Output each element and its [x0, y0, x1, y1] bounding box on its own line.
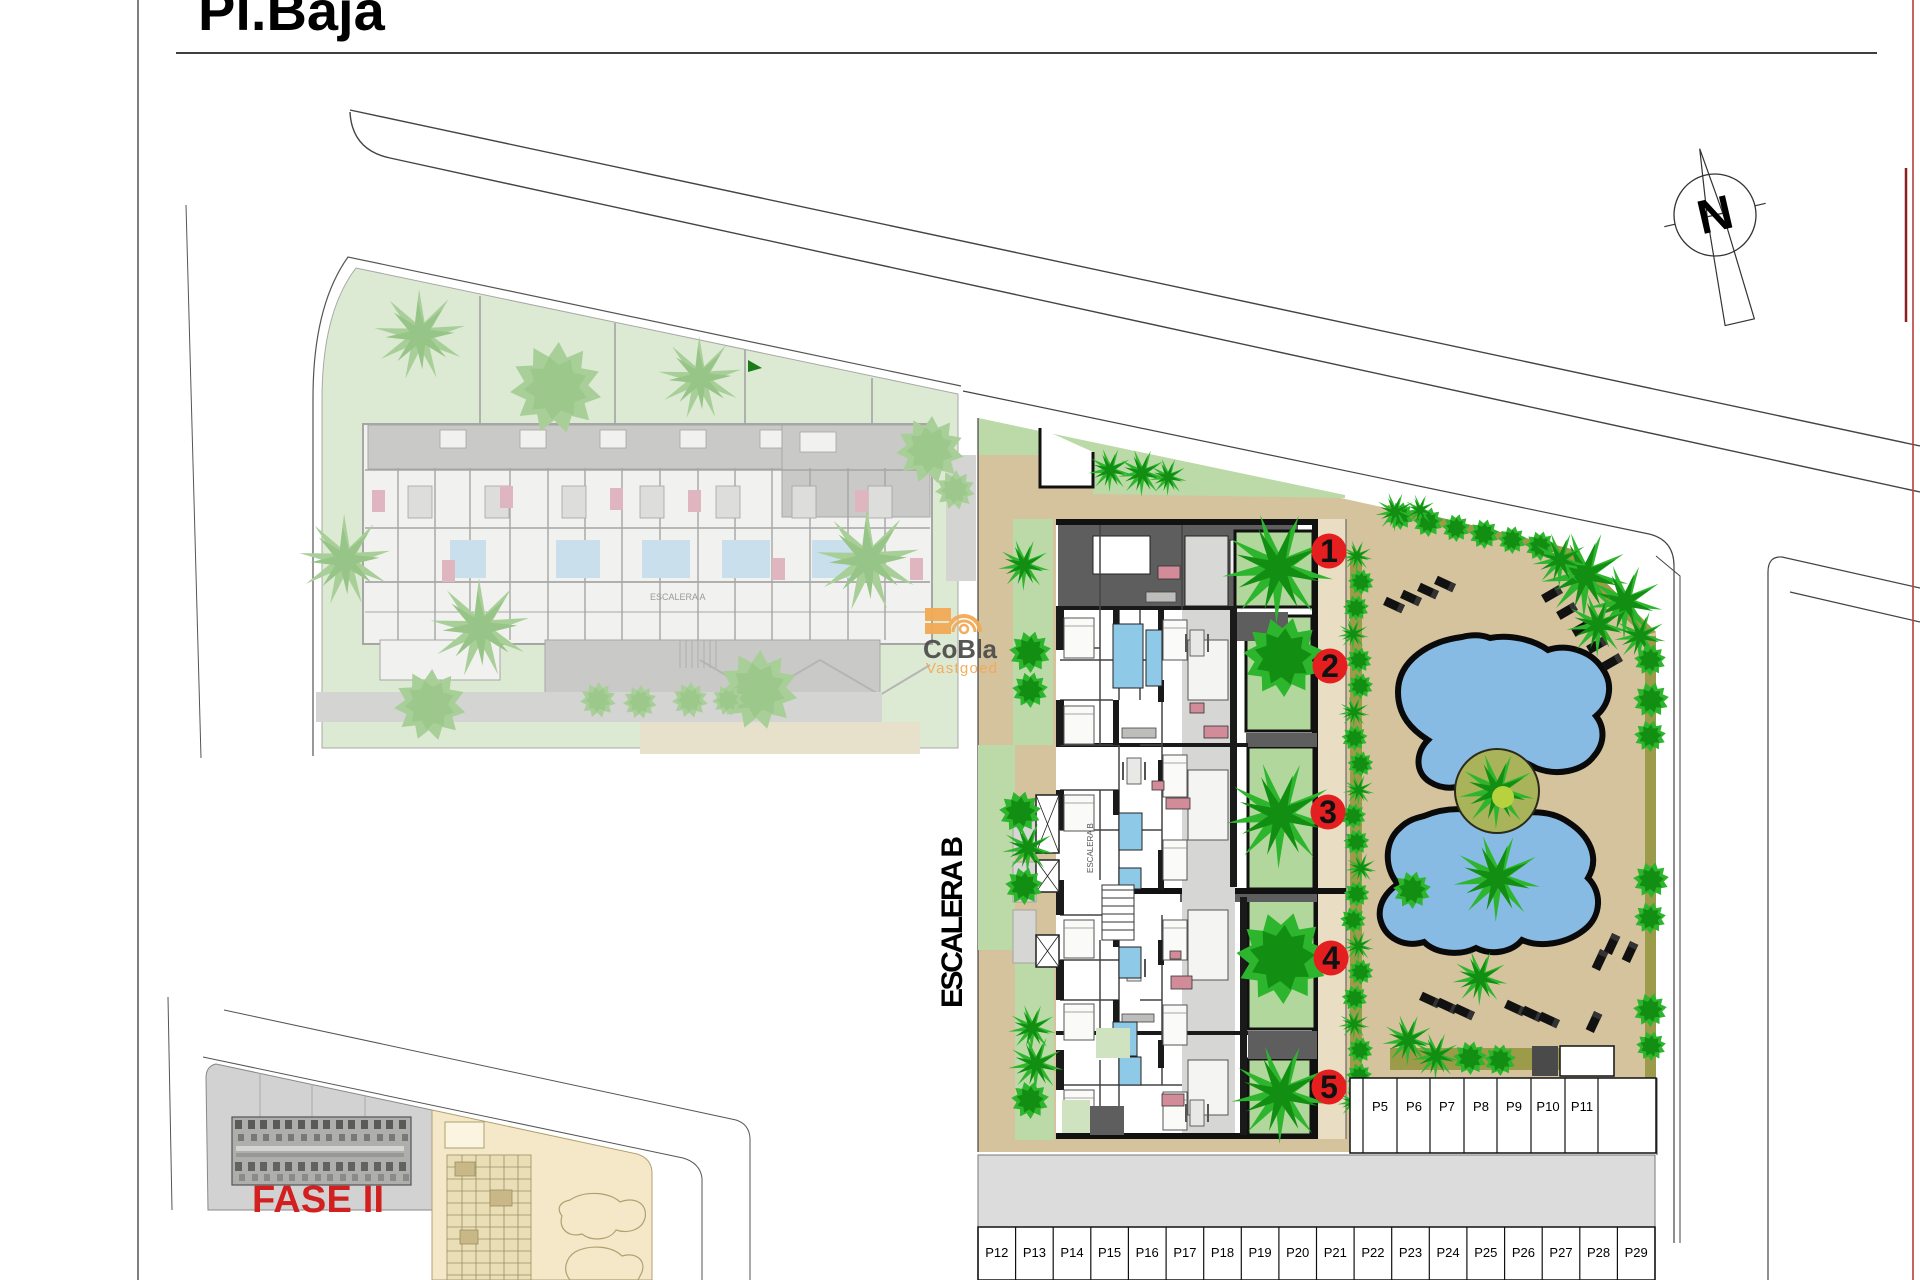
svg-text:Pl.Baja: Pl.Baja — [198, 0, 386, 42]
svg-text:P22: P22 — [1361, 1245, 1384, 1260]
svg-text:P26: P26 — [1512, 1245, 1535, 1260]
svg-text:P20: P20 — [1286, 1245, 1309, 1260]
svg-text:P12: P12 — [985, 1245, 1008, 1260]
svg-text:P29: P29 — [1625, 1245, 1648, 1260]
svg-text:P27: P27 — [1549, 1245, 1572, 1260]
svg-text:5: 5 — [1320, 1069, 1338, 1105]
svg-text:FASE II: FASE II — [252, 1179, 384, 1221]
svg-text:2: 2 — [1321, 648, 1339, 684]
svg-text:P14: P14 — [1060, 1245, 1083, 1260]
svg-text:1: 1 — [1320, 533, 1338, 569]
svg-text:ESCALERA A: ESCALERA A — [650, 592, 706, 602]
svg-text:P9: P9 — [1506, 1099, 1522, 1114]
svg-text:3: 3 — [1319, 794, 1337, 830]
svg-text:P11: P11 — [1571, 1099, 1593, 1114]
svg-text:P23: P23 — [1399, 1245, 1422, 1260]
svg-text:P21: P21 — [1324, 1245, 1347, 1260]
svg-text:P10: P10 — [1536, 1099, 1559, 1114]
svg-text:P5: P5 — [1372, 1099, 1388, 1114]
svg-text:ESCALERA B: ESCALERA B — [936, 836, 969, 1008]
svg-text:P28: P28 — [1587, 1245, 1610, 1260]
svg-text:P8: P8 — [1473, 1099, 1489, 1114]
svg-text:P6: P6 — [1406, 1099, 1422, 1114]
svg-text:P13: P13 — [1023, 1245, 1046, 1260]
svg-text:P17: P17 — [1173, 1245, 1196, 1260]
svg-text:P25: P25 — [1474, 1245, 1497, 1260]
svg-text:ESCALERA B: ESCALERA B — [1086, 823, 1095, 873]
svg-text:P7: P7 — [1439, 1099, 1455, 1114]
svg-text:P19: P19 — [1249, 1245, 1272, 1260]
svg-text:4: 4 — [1322, 940, 1340, 976]
svg-text:P15: P15 — [1098, 1245, 1121, 1260]
svg-text:P18: P18 — [1211, 1245, 1234, 1260]
svg-text:P16: P16 — [1136, 1245, 1159, 1260]
svg-text:P24: P24 — [1437, 1245, 1460, 1260]
svg-text:Vastgoed: Vastgoed — [926, 660, 998, 677]
